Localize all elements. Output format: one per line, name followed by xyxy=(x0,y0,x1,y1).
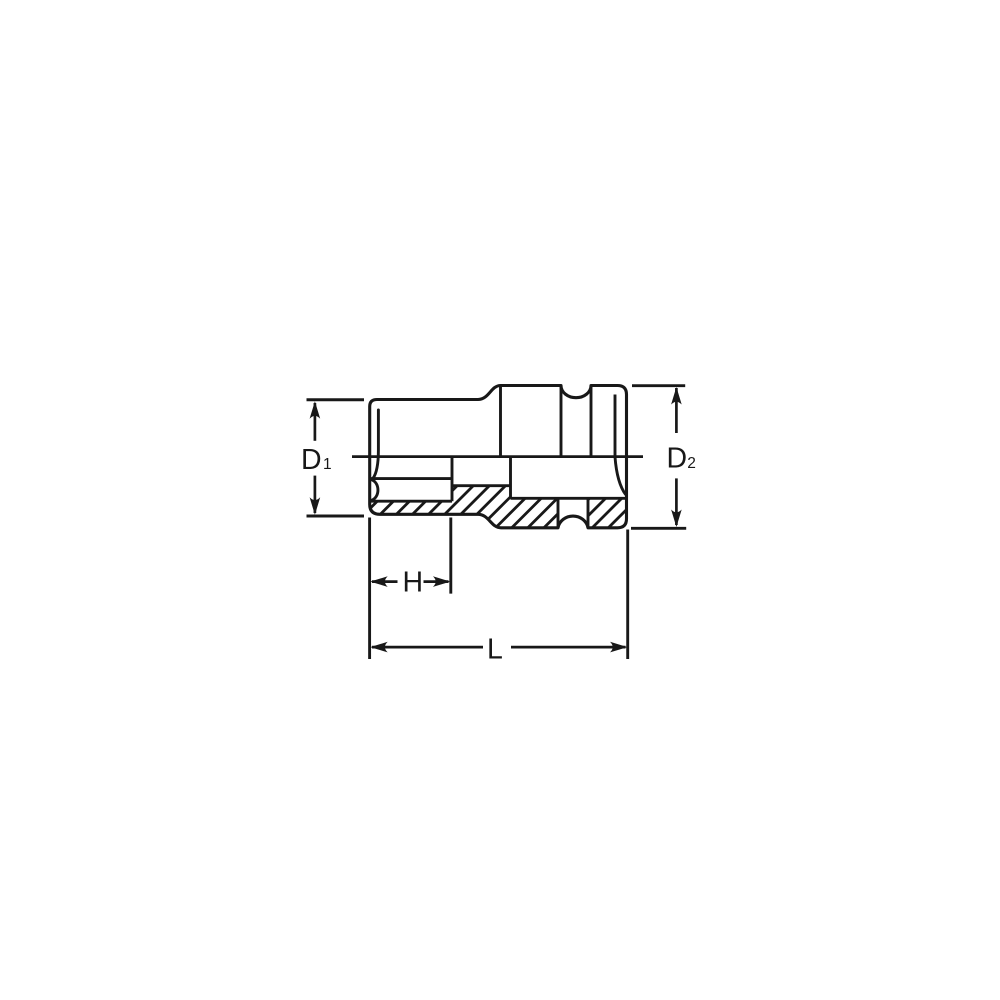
svg-text:D: D xyxy=(301,444,322,476)
svg-text:D: D xyxy=(667,442,688,474)
svg-text:1: 1 xyxy=(323,456,332,473)
svg-text:H: H xyxy=(403,566,424,598)
svg-text:2: 2 xyxy=(687,455,696,472)
svg-text:L: L xyxy=(487,633,503,665)
